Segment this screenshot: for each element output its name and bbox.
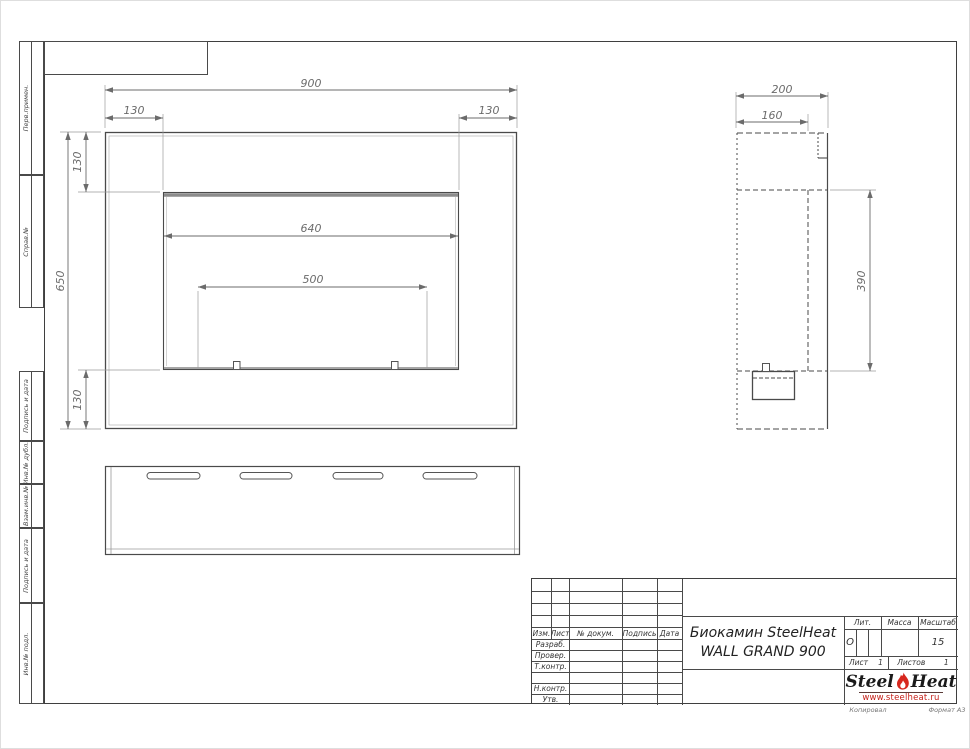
row-prover: Провер. <box>532 650 569 661</box>
scale-value: 15 <box>918 629 958 656</box>
footer-copied: Копировал <box>838 706 898 714</box>
burner-tab <box>234 362 241 370</box>
dim-opening-height: 390 <box>855 271 868 292</box>
logo-heat-text: Heat <box>911 674 957 691</box>
lit-value: О <box>844 629 856 656</box>
document-title-line1: Биокамин SteelHeat <box>690 624 836 643</box>
drawing-sheet: Перв.примен. Справ.№ Подпись и дата Инв.… <box>0 0 970 749</box>
dim-top-offset: 130 <box>71 152 84 173</box>
col-data: Дата <box>657 627 682 639</box>
bottom-view-outline <box>106 467 520 555</box>
row-tkontr: Т.контр. <box>532 661 569 672</box>
mass-label: Масса <box>881 616 918 629</box>
dim-opening-width: 640 <box>301 222 322 235</box>
document-title-line2: WALL GRAND 900 <box>700 643 825 662</box>
vent-slot <box>333 473 383 480</box>
sheet-cell: Лист1 <box>844 656 888 669</box>
burner-tab <box>763 364 770 372</box>
vent-slot <box>147 473 200 480</box>
vent-slot <box>240 473 292 480</box>
logo-url: www.steelheat.ru <box>859 692 942 703</box>
col-podpis: Подпись <box>622 627 657 639</box>
lit-label: Лит. <box>844 616 881 629</box>
scale-label: Масштаб <box>918 616 958 629</box>
row-razrab: Разраб. <box>532 639 569 650</box>
front-view: 900 130 130 650 130 130 640 500 <box>54 77 517 429</box>
dim-burner-width: 500 <box>303 273 324 286</box>
footer-format: Формат А3 <box>917 706 970 714</box>
row-blank <box>532 672 569 683</box>
dim-inner-depth: 160 <box>762 109 783 122</box>
flame-icon <box>896 672 910 691</box>
document-title: Биокамин SteelHeat WALL GRAND 900 <box>682 616 844 669</box>
row-utv: Утв. <box>532 694 569 705</box>
dim-bottom-offset: 130 <box>71 390 84 411</box>
side-view: 200 160 390 <box>736 83 876 429</box>
dim-depth: 200 <box>772 83 793 96</box>
sheets-cell: Листов1 <box>888 656 958 669</box>
row-nkontr: Н.контр. <box>532 683 569 694</box>
dim-left-offset: 130 <box>124 104 145 117</box>
burner-tab <box>392 362 399 370</box>
burner-box <box>753 372 795 400</box>
logo-steel-text: Steel <box>846 674 894 691</box>
company-logo: Steel Heat www.steelheat.ru <box>844 669 958 705</box>
col-list: Лист <box>551 627 569 639</box>
title-block: Изм. Лист № докум. Подпись Дата Разраб. … <box>531 578 957 704</box>
dim-overall-width: 900 <box>301 77 322 90</box>
col-izm: Изм. <box>532 627 551 639</box>
dim-right-offset: 130 <box>479 104 500 117</box>
col-ndokum: № докум. <box>569 627 622 639</box>
vent-slot <box>423 473 477 480</box>
dim-overall-height: 650 <box>54 271 67 292</box>
bottom-view <box>106 467 520 555</box>
